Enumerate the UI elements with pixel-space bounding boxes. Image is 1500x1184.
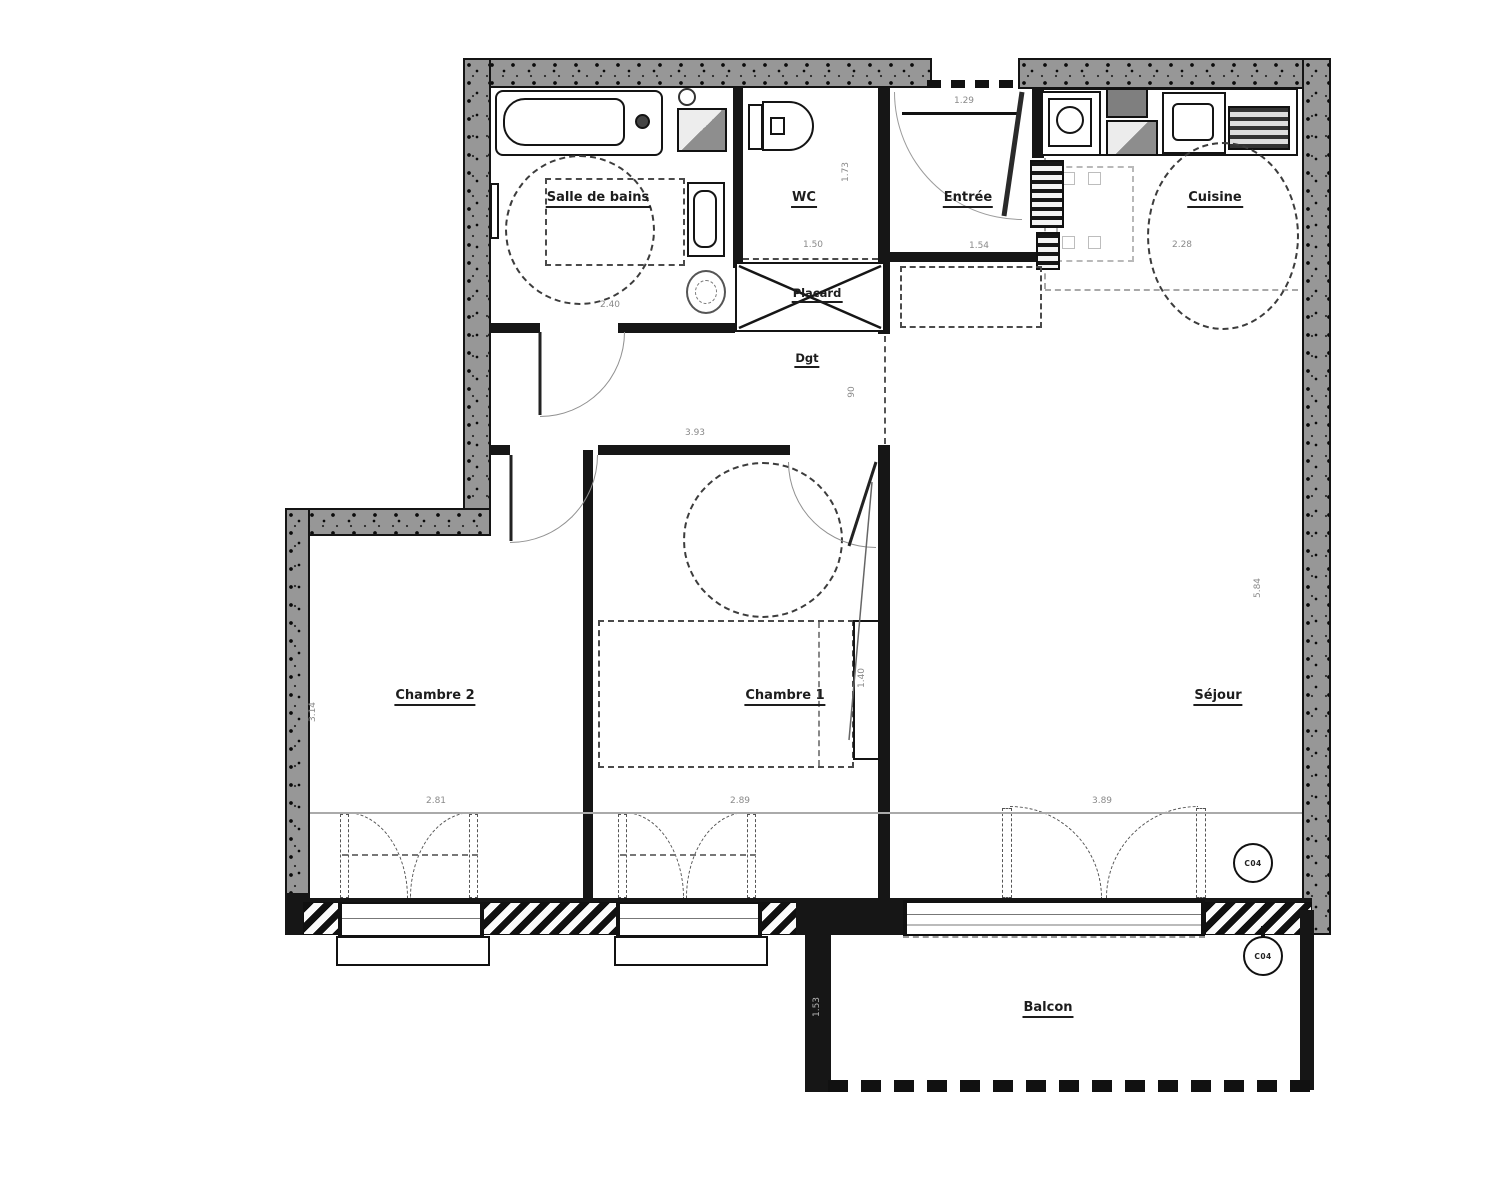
sejour-door-leaf-left	[1002, 808, 1012, 898]
dim-sejour-depth: 5.84	[1253, 578, 1263, 598]
balcony-railing	[828, 1080, 1314, 1092]
kitchen-duct-small	[1106, 88, 1148, 118]
bathtub	[495, 90, 663, 156]
toilet-flush	[770, 117, 785, 135]
sejour-french-window	[903, 900, 1205, 936]
wc-partition-dashed	[743, 258, 878, 260]
chambre2-window	[338, 902, 484, 937]
room-label-chambre1: Chambre 1	[744, 688, 825, 706]
wall-dgt-bottom-mid	[598, 445, 790, 455]
room-label-placard: Placard	[792, 286, 843, 303]
dim-dgt-width: 3.93	[685, 428, 705, 438]
room-label-cuisine: Cuisine	[1187, 190, 1243, 208]
dgt-sejour-opening	[884, 336, 886, 444]
shower-duct	[677, 108, 727, 152]
entree-closet-dashed	[900, 266, 1042, 328]
balcony-right-wall	[1300, 910, 1314, 1090]
chambre2-window-sill	[336, 936, 490, 966]
dim-sdb-width: 2.40	[600, 300, 620, 310]
sejour-door-arc-right	[1106, 806, 1198, 898]
dining-chair-4	[1088, 236, 1101, 249]
dim-wc-width: 1.50	[803, 240, 823, 250]
entrance-threshold	[927, 80, 1022, 88]
dining-chair-2	[1088, 172, 1101, 185]
exterior-wall-left-lower	[285, 508, 310, 935]
chambre1-casement-leaf-right	[747, 814, 756, 898]
wall-sdb-wc	[733, 88, 743, 268]
kitchen-duct-diagonal	[1106, 120, 1158, 156]
wall-entree-sejour	[886, 252, 1044, 262]
turning-circle-cuisine	[1147, 142, 1299, 330]
toilet-tank	[748, 104, 763, 150]
room-label-sejour: Séjour	[1193, 688, 1242, 706]
wall-chambre2-chambre1	[583, 450, 593, 902]
dim-wc-depth: 1.73	[841, 162, 851, 182]
bottom-wall-hatch-2	[480, 902, 620, 935]
dim-chambre1-bed: 1.40	[857, 668, 867, 688]
room-label-balcon: Balcon	[1022, 1000, 1073, 1018]
chambre1-window-sill	[614, 936, 768, 966]
dining-chair-3	[1062, 236, 1075, 249]
exterior-wall-left-upper	[463, 58, 491, 535]
chambre1-window	[616, 902, 762, 937]
pedestal-basin-bowl	[693, 190, 717, 248]
room-label-salle-de-bains: Salle de bains	[546, 190, 651, 208]
chambre2-casement-midline	[342, 854, 478, 856]
window-reference-tag-lower: C04	[1243, 936, 1283, 976]
bottom-wall-hatch-4	[1205, 902, 1312, 935]
chambre1-casement-midline	[620, 854, 756, 856]
dim-chambre2-width: 2.81	[426, 796, 446, 806]
dim-dgt-passage: 90	[847, 386, 857, 397]
floor-plan: Salle de bains WC Entrée Cuisine Placard…	[0, 0, 1500, 1184]
chambre2-casement-leaf-right	[469, 814, 478, 898]
exterior-wall-right	[1302, 58, 1331, 935]
headboard	[853, 620, 880, 760]
window-reference-tag-stem	[1261, 926, 1265, 938]
washing-machine	[1041, 91, 1101, 156]
exterior-wall-step	[285, 508, 491, 536]
washbasin-circle-icon	[678, 88, 696, 106]
technical-shaft-2	[1036, 232, 1060, 270]
turning-circle-sdb	[505, 155, 655, 305]
room-label-entree: Entrée	[943, 190, 993, 208]
washing-machine-drum	[1056, 106, 1084, 134]
exterior-wall-top-right	[1018, 58, 1314, 89]
chambre2-casement-leaf-left	[340, 814, 349, 898]
dim-sejour-width: 3.89	[1092, 796, 1112, 806]
sdb-door-arc	[540, 332, 625, 417]
dim-entree-door: 1.29	[954, 96, 974, 106]
radiator	[490, 183, 499, 239]
dim-entree-width: 1.54	[969, 241, 989, 251]
dim-chambre2-depth: 3.14	[308, 702, 318, 722]
kitchen-sink-bowl	[1172, 103, 1214, 141]
room-label-dgt: Dgt	[794, 351, 819, 368]
chambre1-casement-leaf-left	[618, 814, 627, 898]
dim-cuisine-width: 2.28	[1172, 240, 1192, 250]
pedestal-basin	[687, 182, 725, 257]
bottom-wall-black-balcony	[796, 898, 906, 935]
wall-sdb-dgt-left	[490, 323, 540, 333]
wall-dgt-bottom-left	[490, 445, 510, 455]
room-label-wc: WC	[791, 190, 817, 208]
bathtub-inner	[503, 98, 625, 146]
technical-shaft-1	[1030, 160, 1064, 228]
dimension-line-horizontal	[310, 812, 1302, 814]
window-reference-tag-upper: C04	[1233, 843, 1273, 883]
sejour-door-arc-left	[1010, 806, 1102, 898]
exterior-wall-top-left	[465, 58, 932, 88]
dim-chambre1-width: 2.89	[730, 796, 750, 806]
room-label-chambre2: Chambre 2	[394, 688, 475, 706]
sejour-door-leaf-right	[1196, 808, 1206, 898]
wall-sdb-dgt-right	[618, 323, 735, 333]
bathtub-drain	[635, 114, 650, 129]
toilet-bowl	[762, 101, 814, 151]
floor-drain	[686, 270, 726, 314]
sejour-window-threshold	[903, 936, 1205, 940]
bottom-wall-hatch-1	[303, 902, 343, 935]
dim-balcon-depth: 1.53	[812, 997, 822, 1017]
